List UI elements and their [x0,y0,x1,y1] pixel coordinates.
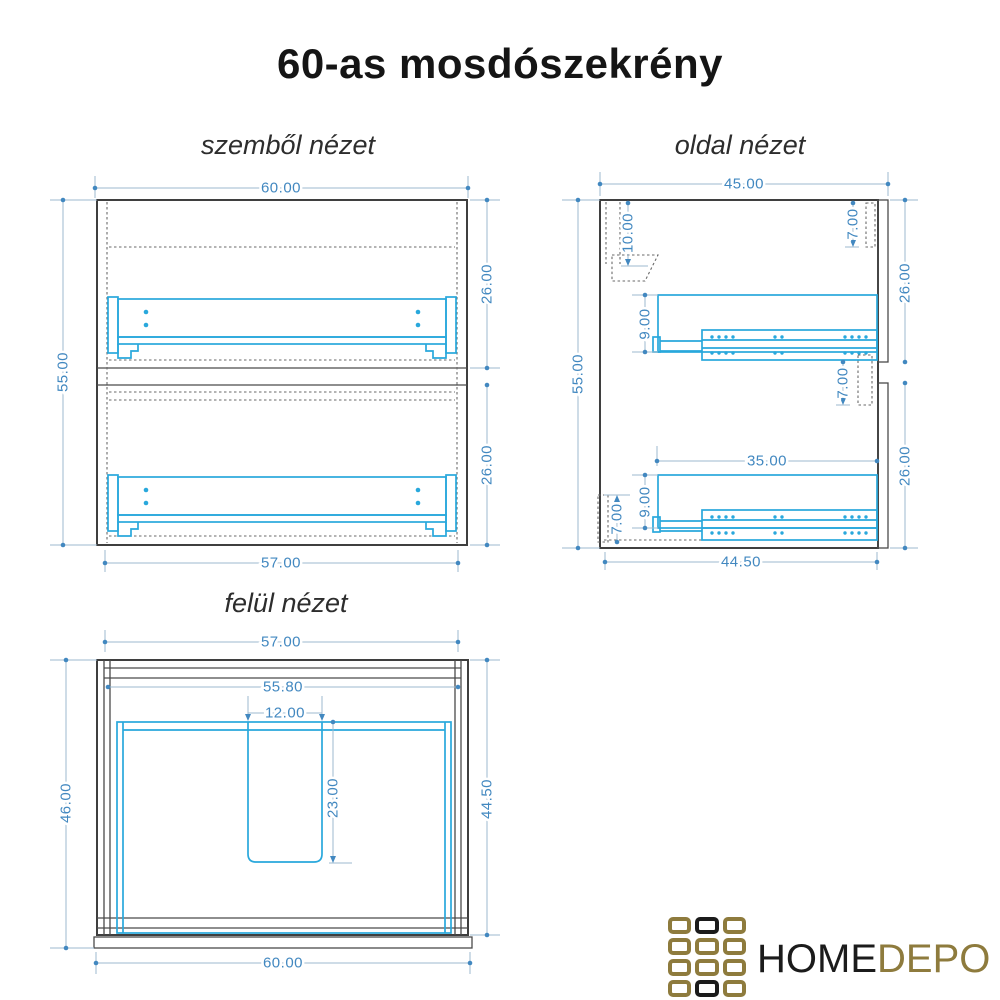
front-upper-drawer [108,297,456,358]
dim-side-top-inset: 10.00 [620,213,637,253]
logo-grid-cell [723,917,746,934]
dim-side-overall-height: 55.00 [570,354,587,394]
dim-side-overall-depth: 45.00 [724,176,764,193]
dim-side-plinth-height: 7.00 [609,503,626,534]
logo-grid-cell [723,980,746,997]
side-upper-slide [653,295,877,360]
logo-grid-cell [695,938,718,955]
logo-word-home: HOME [757,937,877,981]
logo-grid-cell [695,917,718,934]
dim-front-overall-height: 55.00 [55,352,72,392]
logo-grid-cell [668,938,691,955]
dim-top-carcass-width: 57.00 [261,634,301,651]
dim-side-upper-rail-height: 9.00 [637,308,654,339]
logo-grid-cell [695,980,718,997]
dim-side-mid-gap: 7.00 [835,367,852,398]
logo-grid-cell [668,959,691,976]
front-lower-drawer [108,475,456,536]
logo-grid-cell [668,980,691,997]
front-view: 60.00 55.00 26.00 26.00 57.00 [50,176,500,572]
dim-top-carcass-depth: 44.50 [479,779,496,819]
slide-rivets-lower [710,515,867,534]
logo-grid-cell [723,959,746,976]
dim-side-top-gap: 7.00 [845,208,862,239]
dim-top-cutout-width: 12.00 [265,705,305,722]
logo-grid-cell [668,917,691,934]
logo-word-depo: DEPO [877,937,990,981]
dim-side-slide-length: 35.00 [747,453,787,470]
dim-top-cutout-depth: 23.00 [325,778,342,818]
homedepo-logo-icon [668,917,746,997]
dim-front-overall-width: 60.00 [261,180,301,197]
dim-front-carcass-width: 57.00 [261,555,301,572]
siphon-cutout [248,722,322,862]
dim-top-inner-width: 55.80 [263,679,303,696]
logo-grid-cell [695,959,718,976]
side-view: 45.00 55.00 10.00 7.00 26.00 26.00 9.00 [562,172,918,571]
top-view: 57.00 55.80 12.00 23.00 46.00 44.50 60.0… [50,630,500,974]
top-cabinet-outline [94,660,472,948]
logo-grid-cell [723,938,746,955]
dim-side-lower-front-height: 26.00 [897,446,914,486]
dim-front-lower-drawer-height: 26.00 [479,445,496,485]
dim-top-overall-depth: 46.00 [58,783,75,823]
front-cabinet-outline [97,200,467,545]
side-lower-slide [653,475,877,540]
dim-side-lower-rail-height: 9.00 [637,486,654,517]
technical-drawing: 60.00 55.00 26.00 26.00 57.00 [0,0,1000,1000]
homedepo-logo-text: HOMEDEPO [757,937,990,982]
dim-side-carcass-depth: 44.50 [721,554,761,571]
top-drawer-outline [117,722,451,933]
dim-side-upper-front-height: 26.00 [897,263,914,303]
dim-top-front-width: 60.00 [263,955,303,972]
dim-front-upper-drawer-height: 26.00 [479,264,496,304]
